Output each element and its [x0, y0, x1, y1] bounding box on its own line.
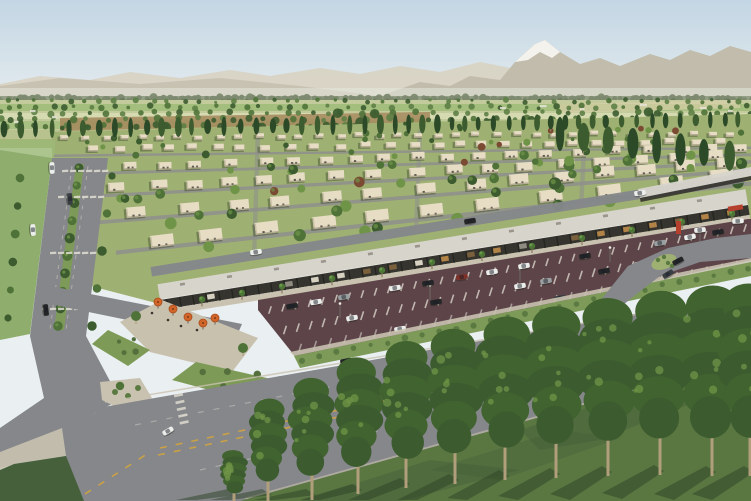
tree-foliage-highlight: [690, 371, 698, 379]
farm-tree: [230, 117, 236, 123]
yard-tree-highlight: [205, 243, 210, 248]
farm-tree: [272, 98, 276, 102]
house-parapet-shade: [709, 135, 717, 136]
yard-tree-highlight: [361, 227, 366, 232]
yard-tree: [615, 127, 621, 133]
umbrella-top: [202, 322, 204, 324]
tree-foliage-highlight: [341, 428, 348, 435]
palm-highlight: [239, 290, 242, 293]
verge-tree: [14, 202, 22, 210]
farm-tree: [89, 105, 94, 110]
yard-tree: [230, 185, 239, 194]
tree-foliage-highlight: [498, 372, 505, 379]
yard-tree-highlight: [228, 210, 232, 214]
car-glass: [467, 219, 472, 224]
farm-building: [30, 110, 36, 112]
tree-foliage-highlight: [395, 412, 401, 418]
yard-tree-highlight: [373, 224, 378, 229]
palm-highlight: [479, 251, 482, 254]
median-shrub: [470, 323, 476, 329]
yard-tree: [377, 161, 385, 169]
yard-tree-highlight: [737, 160, 742, 165]
farm-tree: [504, 109, 510, 115]
car-glass: [735, 219, 740, 223]
median-tree: [53, 321, 62, 330]
farm-building: [728, 110, 733, 112]
house-parapet-shade: [278, 138, 286, 139]
farm-tree: [522, 100, 527, 105]
farm-tree: [701, 109, 708, 116]
house-parapet-shade: [156, 139, 164, 140]
farm-tree: [111, 98, 117, 104]
house-parapet-shade: [522, 146, 532, 148]
house-window: [515, 182, 517, 184]
farm-tree: [214, 103, 218, 107]
house-parapet-shade: [81, 139, 89, 140]
farm-tree: [346, 105, 350, 109]
shrub: [132, 337, 136, 341]
yard-tree-highlight: [491, 175, 495, 179]
house-window: [197, 186, 199, 188]
house-window: [320, 225, 322, 227]
farm-building: [500, 107, 506, 109]
farm-tree: [290, 116, 297, 123]
yard-tree: [492, 163, 499, 170]
house-parapet-shade: [410, 147, 420, 149]
house: [444, 164, 463, 175]
house-window: [156, 186, 158, 188]
yard-tree: [362, 136, 368, 142]
treeline-tree: [239, 95, 244, 100]
entry-monument-sign: [676, 221, 681, 234]
poplar-tree: [476, 117, 481, 131]
crosswalk-bar: [74, 196, 80, 199]
crosswalk-bar: [90, 196, 96, 199]
house-window: [416, 157, 418, 159]
poplar-tree: [175, 117, 182, 137]
house-window: [373, 219, 375, 221]
farm-tree: [296, 110, 301, 115]
house-parapet-shade: [386, 147, 396, 149]
farm-tree: [120, 111, 126, 117]
farm-tree: [166, 111, 172, 117]
poplar-tree: [80, 120, 86, 136]
median-shrub: [660, 282, 665, 287]
tree-foliage-highlight: [609, 324, 617, 332]
median-tree: [68, 216, 77, 225]
house-window: [299, 179, 301, 181]
farm-tree: [88, 111, 92, 115]
house: [325, 170, 344, 181]
shrub: [662, 255, 666, 259]
tree-foliage-highlight: [260, 414, 265, 419]
poplar-tree: [462, 116, 467, 132]
farm-tree: [458, 105, 462, 109]
farm-tree: [445, 103, 451, 109]
shrub: [199, 369, 205, 375]
farm-tree: [152, 99, 157, 104]
house-window: [236, 207, 238, 209]
yard-tree: [194, 210, 203, 219]
light-pole-head: [339, 302, 342, 305]
house-parapet-shade: [435, 137, 443, 138]
house-parapet-shade: [355, 135, 363, 136]
house-parapet-shade: [194, 139, 202, 140]
farm-tree: [311, 110, 316, 115]
house-window: [261, 182, 263, 184]
farm-tree: [523, 109, 527, 113]
house-window: [611, 151, 613, 153]
farm-tree: [230, 103, 235, 108]
median-shrub: [316, 353, 322, 359]
island-tree: [116, 382, 124, 390]
treeline-tree: [262, 96, 267, 101]
house-window: [282, 203, 284, 205]
tree-foliage: [536, 406, 573, 444]
farm-tree: [17, 104, 22, 109]
median-shrub: [419, 332, 424, 337]
house-parapet-shade: [361, 146, 371, 148]
house-window: [329, 199, 331, 201]
tree-foliage-highlight: [655, 366, 663, 374]
house-parapet-shade: [164, 149, 174, 151]
house: [514, 162, 533, 173]
crosswalk-bar: [70, 170, 76, 173]
house-window: [324, 161, 326, 163]
car-glass: [349, 316, 354, 321]
farm-tree: [553, 103, 560, 110]
yard-tree: [638, 126, 644, 132]
yard-tree: [294, 229, 306, 241]
verge-tree: [97, 246, 107, 256]
car-glass: [489, 270, 494, 275]
yard-tree: [593, 165, 601, 173]
yard-tree: [388, 160, 397, 169]
farm-tree: [655, 98, 660, 103]
yard-tree: [267, 163, 275, 171]
tree-foliage-highlight: [346, 397, 353, 404]
house: [414, 182, 436, 196]
tree-foliage-highlight: [481, 350, 486, 355]
house-window: [599, 164, 601, 166]
tree-foliage-highlight: [488, 399, 494, 405]
house-window: [127, 167, 129, 169]
tree-foliage-highlight: [714, 367, 719, 372]
house-window: [242, 207, 244, 209]
farm-tree: [665, 99, 670, 104]
house-window: [228, 164, 230, 166]
verge-tree: [8, 258, 17, 267]
farm-building: [700, 107, 706, 109]
median-tree: [73, 181, 81, 189]
house-window: [414, 174, 416, 176]
house-window: [543, 155, 545, 157]
yard-tree-highlight: [157, 190, 161, 194]
poplar-tree: [634, 114, 639, 127]
median-tree-highlight: [62, 271, 65, 274]
tree-foliage-highlight: [546, 346, 552, 352]
yard-tree: [348, 149, 354, 155]
farm-tree: [6, 98, 11, 103]
poplar-tree: [491, 115, 496, 131]
median-shrub: [712, 273, 716, 277]
house-window: [647, 150, 649, 152]
palm-highlight: [379, 268, 382, 271]
house-window: [206, 238, 208, 240]
house-window: [473, 187, 475, 189]
house-window: [270, 230, 272, 232]
tree-foliage-highlight: [306, 411, 310, 415]
car-glass: [582, 254, 587, 259]
farm-tree: [226, 109, 233, 116]
house-parapet-shade: [545, 146, 555, 148]
yard-tree: [289, 165, 299, 175]
yard-tree-highlight: [688, 165, 691, 168]
tree-foliage-highlight: [555, 380, 562, 387]
farm-tree: [394, 99, 398, 103]
farm-tree: [707, 105, 713, 111]
car-glass: [50, 165, 54, 170]
farm-tree: [341, 116, 347, 122]
farm-building: [52, 116, 57, 118]
house-window: [607, 174, 609, 176]
palm-tree: [579, 235, 585, 241]
farm-tree: [342, 98, 347, 103]
tree-foliage-highlight: [638, 348, 643, 353]
house-window: [192, 166, 194, 168]
house-parapet-shade: [256, 136, 264, 137]
house-parapet-shade: [143, 149, 153, 151]
treeline-tree: [204, 96, 209, 101]
farm-tree: [470, 99, 473, 102]
tree-foliage-highlight: [538, 354, 545, 361]
house-window: [547, 199, 549, 201]
yard-tree-highlight: [594, 166, 597, 169]
tree-foliage-highlight: [533, 397, 538, 402]
farm-tree: [428, 104, 434, 110]
house-window: [479, 186, 481, 188]
shrub: [135, 385, 141, 391]
house-window: [521, 181, 523, 183]
farm-tree: [612, 110, 619, 117]
yard-tree: [489, 140, 494, 145]
farm-tree: [245, 115, 252, 122]
shrub: [224, 368, 231, 375]
tree-foliage: [437, 419, 472, 454]
crosswalk-bar: [66, 252, 72, 255]
tree-foliage-highlight: [443, 381, 450, 388]
yard-tree: [297, 185, 305, 193]
yard-tree: [491, 187, 501, 197]
house: [149, 179, 168, 190]
house: [184, 180, 203, 191]
house-parapet-shade: [336, 149, 346, 151]
tree-foliage: [588, 401, 627, 441]
house-window: [370, 176, 372, 178]
farm-tree: [178, 105, 183, 110]
yard-tree-highlight: [166, 219, 171, 224]
poplar-tree: [590, 115, 596, 129]
house-window: [423, 191, 425, 193]
palm-highlight: [729, 211, 732, 214]
house-window: [192, 187, 194, 189]
poplar-tree: [189, 118, 194, 135]
poplar-tree: [675, 133, 685, 165]
person: [167, 319, 170, 322]
farm-tree: [727, 100, 731, 104]
tree-foliage: [391, 426, 424, 459]
farm-tree: [635, 109, 642, 116]
farm-tree: [70, 116, 77, 123]
house-parapet-shade: [452, 135, 460, 136]
farm-tree: [8, 117, 14, 123]
house-parapet-shade: [435, 147, 445, 149]
tree-foliage-highlight: [294, 438, 298, 442]
car-glass: [697, 228, 702, 232]
yard-tree: [461, 159, 468, 166]
median-shrub: [522, 311, 528, 317]
tree-foliage-highlight: [253, 430, 261, 438]
house-window: [435, 213, 437, 215]
car-glass: [637, 191, 642, 196]
poplar-tree: [299, 116, 305, 135]
yard-tree: [467, 175, 477, 185]
median-shrub: [745, 266, 751, 272]
house-window: [723, 165, 725, 167]
plaza-tree: [238, 343, 248, 353]
house-window: [214, 238, 216, 240]
farm-tree: [525, 106, 529, 110]
farm-tree: [133, 124, 139, 130]
treeline-tree: [88, 96, 93, 101]
house-window: [487, 170, 489, 172]
tree-foliage: [690, 396, 731, 438]
farm-tree: [277, 105, 283, 111]
farm-tree: [126, 106, 130, 110]
poplar-tree: [66, 120, 71, 137]
yard-tree: [429, 138, 434, 143]
poplar-tree: [650, 113, 655, 128]
treeline-tree: [473, 95, 478, 100]
farm-tree: [138, 110, 144, 116]
farm-tree: [735, 99, 741, 105]
car-glass: [341, 295, 346, 300]
farm-tree: [507, 104, 512, 109]
tree-foliage-highlight: [496, 386, 503, 393]
palm-tree: [629, 227, 635, 233]
farm-tree: [195, 115, 201, 121]
farm-tree: [208, 109, 213, 114]
house-parapet-shade: [287, 149, 297, 151]
poplar-tree: [112, 118, 118, 138]
farm-tree: [7, 105, 12, 110]
farm-tree: [326, 111, 331, 116]
farm-tree: [72, 104, 76, 108]
car-glass: [543, 279, 548, 284]
poplar-tree: [33, 120, 38, 137]
car-glass: [459, 275, 464, 280]
house-parapet-shade: [567, 144, 577, 146]
house-window: [381, 158, 383, 160]
farm-tree: [556, 109, 562, 115]
house-window: [369, 196, 371, 198]
plaza-tree: [131, 311, 141, 321]
house-window: [601, 174, 603, 176]
tree-foliage-highlight: [683, 315, 691, 323]
crosswalk-bar: [90, 252, 96, 255]
yard-tree: [687, 164, 695, 172]
house-parapet-shade: [187, 148, 197, 150]
house-window: [132, 215, 134, 217]
light-pole: [610, 248, 611, 262]
house-parapet-shade: [455, 145, 465, 147]
tree-foliage-highlight: [302, 429, 307, 434]
umbrella-top: [157, 301, 159, 303]
crosswalk-bar: [58, 196, 64, 199]
verge-tree: [87, 321, 96, 330]
car-glass: [253, 250, 258, 255]
car-glass: [44, 307, 48, 312]
yard-tree: [132, 152, 139, 159]
shrub: [117, 340, 121, 344]
tree-foliage-highlight: [383, 399, 391, 407]
house-window: [547, 155, 549, 157]
tree-foliage: [489, 411, 525, 447]
treeline-tree: [699, 95, 705, 101]
house-parapet-shade: [260, 150, 270, 152]
crosswalk-bar: [58, 252, 64, 255]
farm-tree: [164, 102, 170, 108]
farm-tree: [426, 117, 431, 122]
tree-foliage: [639, 398, 679, 439]
yard-tree-highlight: [688, 152, 692, 156]
yard-tree: [85, 140, 90, 145]
poplar-tree: [238, 119, 244, 134]
yard-tree: [283, 142, 289, 148]
house-window: [491, 207, 493, 209]
verge-tree: [7, 287, 14, 294]
farm-tree: [103, 110, 110, 117]
farm-tree: [729, 105, 734, 110]
farm-tree: [106, 118, 111, 123]
house-parapet-shade: [140, 137, 148, 138]
tree-foliage: [296, 449, 324, 476]
yard-tree: [270, 187, 278, 195]
yard-tree: [457, 124, 462, 129]
treeline-tree: [579, 94, 585, 100]
house-parapet-shade: [668, 135, 676, 136]
tree-foliage-highlight: [504, 386, 510, 392]
palm-tree: [279, 283, 285, 289]
yard-tree: [202, 151, 210, 159]
house-parapet-shade: [414, 136, 422, 137]
yard-tree-highlight: [196, 212, 200, 216]
umbrella-top: [214, 317, 216, 319]
yard-tree-highlight: [389, 161, 393, 165]
house-window: [561, 180, 563, 182]
median-shrub: [351, 345, 357, 351]
yard-tree-highlight: [232, 186, 236, 190]
farm-tree-clump: [333, 108, 343, 118]
yard-tree: [121, 194, 129, 202]
house-parapet-shade: [316, 136, 324, 137]
car-glass: [289, 304, 294, 309]
car-glass: [313, 300, 318, 305]
house-window: [264, 162, 266, 164]
house-parapet-shade: [234, 137, 242, 138]
car-glass: [715, 230, 720, 235]
yard-tree-highlight: [469, 177, 473, 181]
